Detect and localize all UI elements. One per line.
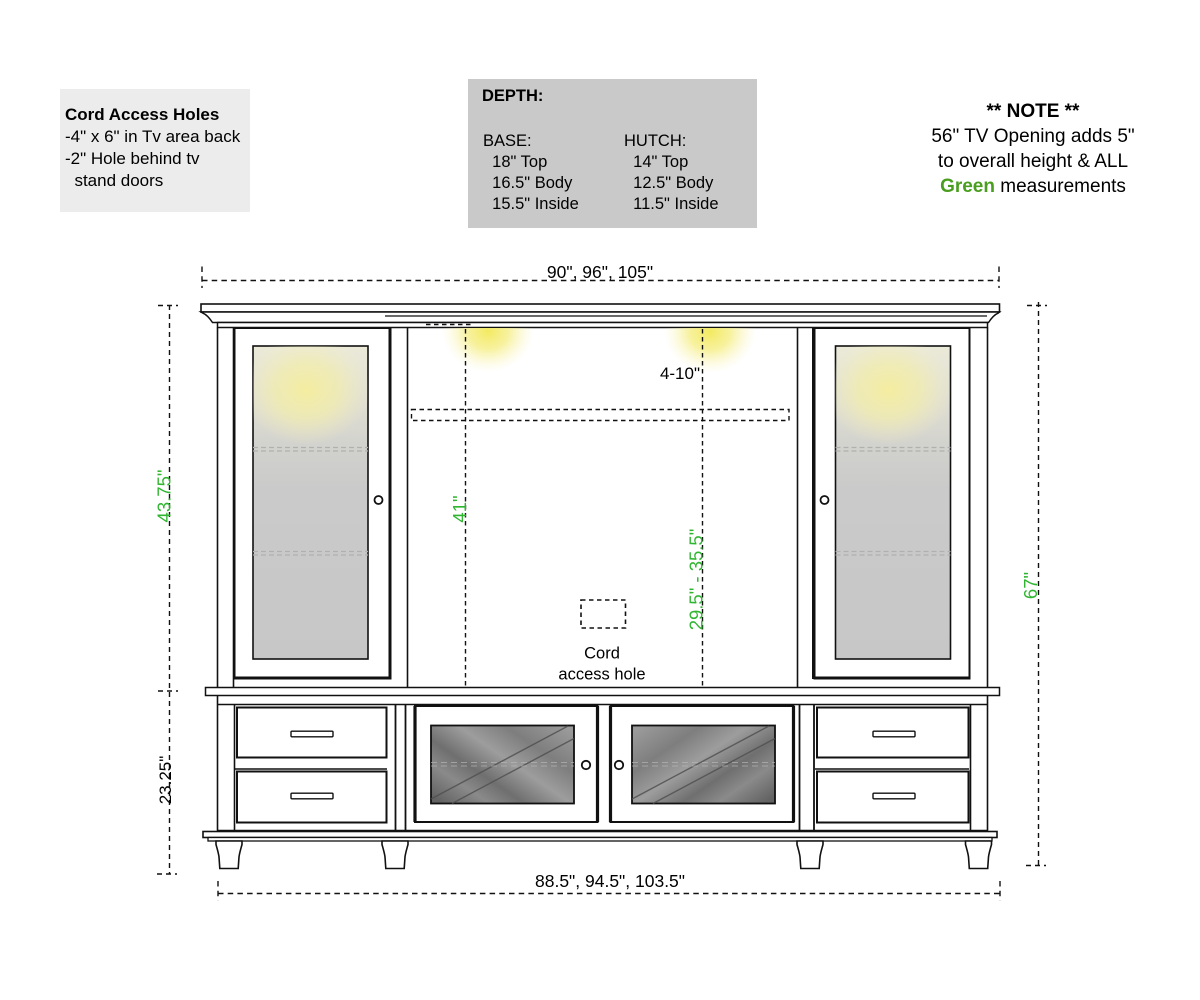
svg-text:67": 67" [1020, 572, 1041, 599]
svg-text:23.25": 23.25" [156, 756, 175, 805]
svg-text:4-10": 4-10" [660, 364, 700, 383]
svg-text:43.75": 43.75" [154, 470, 175, 523]
svg-text:Cord: Cord [584, 645, 620, 663]
svg-text:access hole: access hole [558, 666, 645, 684]
svg-text:88.5", 94.5", 103.5": 88.5", 94.5", 103.5" [535, 871, 685, 891]
svg-text:41": 41" [449, 495, 470, 522]
svg-text:29.5" - 35.5": 29.5" - 35.5" [686, 529, 707, 631]
svg-text:90", 96", 105": 90", 96", 105" [547, 262, 653, 282]
